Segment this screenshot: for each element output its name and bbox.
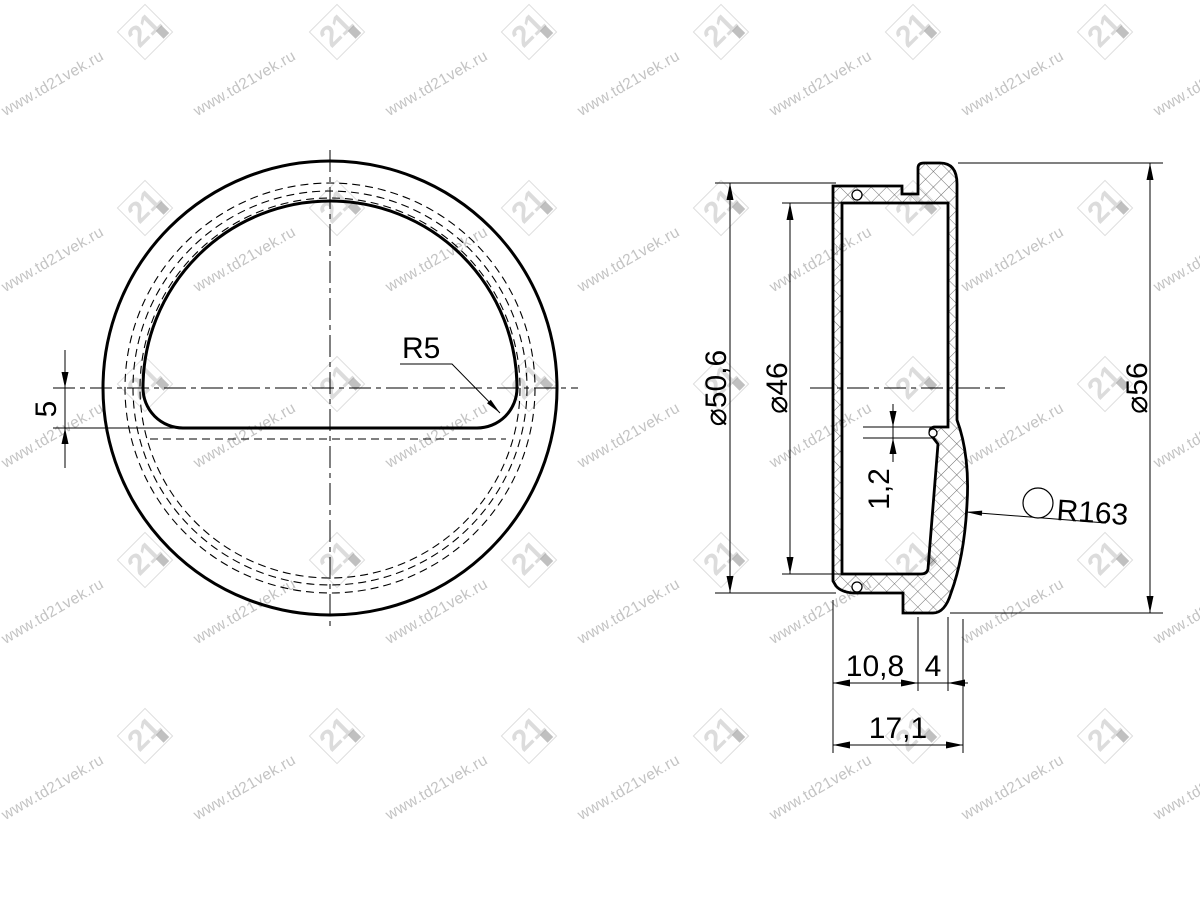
- dim-edge-thickness-label: 1,2: [863, 468, 896, 510]
- dim-corner-radius-label: R5: [402, 332, 440, 365]
- dim-depth-body-label: 10,8: [846, 650, 904, 683]
- dim-dia-body: ⌀50,6: [700, 183, 734, 593]
- dim-depth-total-label: 17,1: [869, 712, 927, 745]
- drawing-canvas: www.td21vek.ru21www.td21vek.ru21www.td21…: [0, 0, 1200, 900]
- dim-flat-offset: 5: [30, 350, 190, 468]
- dim-dia-opening: ⌀46: [761, 203, 794, 574]
- dim-flat-offset-label: 5: [30, 401, 63, 418]
- dim-dia-overall-label: ⌀56: [1121, 362, 1154, 413]
- dim-lip-width-label: 4: [925, 650, 942, 683]
- dim-dia-overall: ⌀56: [1121, 163, 1154, 613]
- section-view: ⌀50,6 ⌀46 ⌀56 1,2: [700, 163, 1163, 753]
- dim-edge-thickness: 1,2: [863, 404, 897, 510]
- front-view-centerlines: [53, 150, 578, 628]
- rim-bead-details: [852, 190, 937, 592]
- dim-corner-radius: R5: [400, 332, 500, 413]
- dim-dia-body-label: ⌀50,6: [700, 350, 733, 426]
- front-view: 5 R5: [30, 150, 578, 628]
- leader-balloon: [1023, 488, 1053, 518]
- technical-drawing: 5 R5: [0, 0, 1200, 900]
- dim-depth-total: 17,1: [833, 712, 963, 749]
- dim-dia-opening-label: ⌀46: [761, 362, 794, 413]
- dim-lip-radius-label: R163: [1056, 494, 1130, 532]
- dim-lip-radius: R163: [966, 488, 1129, 532]
